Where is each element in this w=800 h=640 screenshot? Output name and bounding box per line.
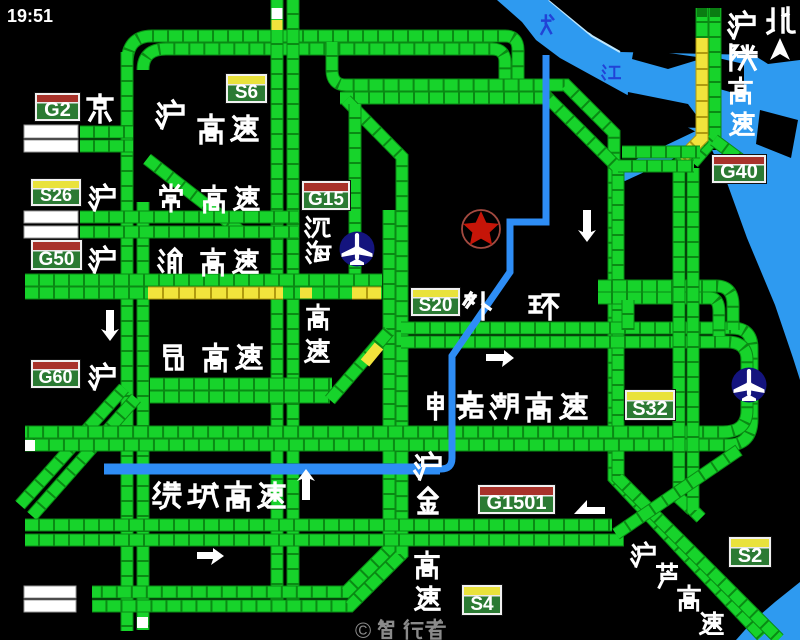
svg-text:S2: S2 xyxy=(738,545,762,567)
svg-text:G40: G40 xyxy=(720,161,758,183)
svg-text:G2: G2 xyxy=(44,99,71,121)
svg-text:G1501: G1501 xyxy=(486,492,546,514)
svg-text:G15: G15 xyxy=(308,189,344,210)
svg-text:19:51: 19:51 xyxy=(7,6,53,26)
svg-text:S4: S4 xyxy=(470,594,494,615)
svg-text:S20: S20 xyxy=(419,295,453,316)
svg-text:S6: S6 xyxy=(235,82,258,103)
svg-text:G50: G50 xyxy=(39,249,75,270)
svg-text:©: © xyxy=(355,618,371,640)
svg-text:S32: S32 xyxy=(632,398,668,420)
svg-text:G60: G60 xyxy=(38,367,72,387)
svg-text:S26: S26 xyxy=(40,185,72,205)
